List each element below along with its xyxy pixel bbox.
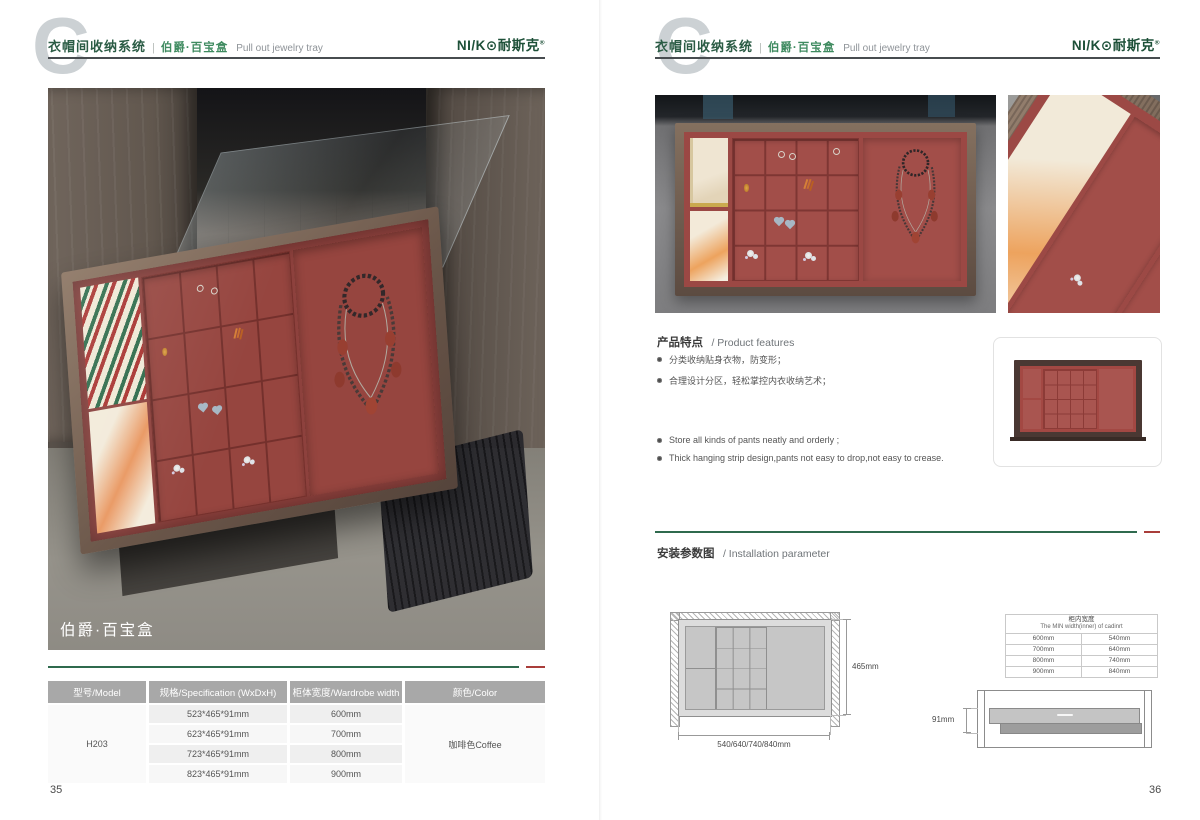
page-number-right: 36 (1149, 784, 1161, 796)
features-heading-cn: 产品特点 (657, 337, 703, 349)
header-divider: | (152, 42, 155, 54)
spec-cell: 623*465*91mm (149, 725, 287, 743)
height-label: 91mm (932, 715, 954, 724)
feature-text: 分类收纳贴身衣物，防变形； (669, 353, 786, 366)
cabinet-width-table: 柜内宽度 The MIN width(inner) of cadinrt 600… (1005, 614, 1158, 678)
header-product-name: 伯爵·百宝盒 (768, 39, 835, 55)
blue-glint (703, 95, 734, 119)
product-thumbnail (1014, 360, 1142, 438)
features-list-en: Store all kinds of pants neatly and orde… (657, 435, 944, 471)
jewelry-tray-angled (1008, 95, 1160, 313)
tray-compartments (1008, 95, 1160, 313)
tassel-icon (806, 179, 811, 189)
green-separator-line (48, 666, 519, 668)
feature-item: 分类收纳贴身衣物，防变形； (657, 353, 831, 366)
product-thumbnail-box (993, 337, 1162, 467)
width-dimension-line (678, 735, 830, 736)
scarf-column-outline (686, 627, 716, 709)
cell: 640mm (1082, 644, 1158, 655)
table-row: 600mm540mm (1006, 633, 1158, 644)
page-gutter (599, 0, 602, 820)
cell: 600mm (1006, 633, 1082, 644)
tray-compartments (690, 138, 960, 280)
table-row: 900mm840mm (1006, 667, 1158, 678)
height-dimension-line (966, 708, 967, 733)
dimension-extension (966, 733, 978, 734)
small-compartment-grid (1043, 369, 1098, 429)
spec-cell: 723*465*91mm (149, 745, 287, 763)
color-cell: 咖啡色Coffee (405, 705, 545, 783)
registered-mark: ® (1155, 40, 1160, 47)
installation-heading-en: / Installation parameter (723, 548, 830, 560)
bullet-icon (657, 438, 662, 443)
cell: 840mm (1082, 667, 1158, 678)
brand-mark (1057, 714, 1073, 716)
width-cell: 900mm (290, 765, 402, 783)
page-number-left: 35 (50, 784, 62, 796)
necklace-compartment (863, 138, 961, 280)
header-tagline-en: Pull out jewelry tray (843, 43, 930, 54)
jewelry-tray (675, 123, 975, 295)
heart-pendant-icon (774, 218, 782, 226)
green-separator-line (655, 531, 1137, 533)
table-row: 800mm740mm (1006, 655, 1158, 666)
header-divider: | (759, 42, 762, 54)
installation-heading: 安装参数图 / Installation parameter (657, 544, 830, 562)
depth-dimension-line (846, 619, 847, 715)
spec-table: 型号/Model 规格/Specification (WxDxH) 柜体宽度/W… (48, 681, 545, 783)
width-table-title: 柜内宽度 The MIN width(inner) of cadinrt (1006, 615, 1158, 634)
tray-velvet (1020, 366, 1136, 432)
earring-icon (833, 148, 840, 155)
width-table-title-en: The MIN width(inner) of cadinrt (1006, 624, 1157, 632)
depth-label: 465mm (852, 662, 879, 671)
tray-compartments (1023, 369, 1133, 429)
amber-pendant-icon (744, 184, 749, 192)
width-cell: 600mm (290, 705, 402, 723)
cell: 700mm (1006, 644, 1082, 655)
grid-outline (716, 627, 767, 709)
brand-logo: NI/K⊙耐斯克® (1072, 34, 1160, 54)
photo-caption: 伯爵·百宝盒 (60, 618, 155, 640)
cell (1023, 369, 1041, 398)
model-cell: H203 (48, 705, 146, 783)
spec-cell: 823*465*91mm (149, 765, 287, 783)
cell: 900mm (1006, 667, 1082, 678)
spec-table-header-spec: 规格/Specification (WxDxH) (149, 681, 287, 703)
topview-diagram: 465mm 540/640/740/840mm (670, 607, 900, 759)
scarf-cream (690, 138, 728, 207)
flower-jewelry-icon (1072, 273, 1082, 283)
open-compartment (1099, 369, 1133, 429)
dimension-extension (830, 716, 831, 735)
spec-table-header-color: 颜色/Color (405, 681, 545, 703)
installation-heading-cn: 安装参数图 (657, 548, 715, 560)
width-table-title-cn: 柜内宽度 (1006, 616, 1157, 624)
width-label: 540/640/740/840mm (678, 740, 830, 749)
cell: 800mm (1006, 655, 1082, 666)
open-cell-outline (767, 627, 824, 709)
header-system-title: 衣帽间收纳系统 (655, 36, 753, 55)
tray-side-profile (989, 708, 1140, 724)
tray-topview-photo (655, 95, 996, 313)
features-heading: 产品特点 / Product features (657, 333, 794, 351)
dimension-extension (831, 715, 846, 716)
flower-jewelry-icon (805, 252, 812, 259)
brand-o-icon: ⊙ (486, 38, 498, 53)
scarf-column (1023, 369, 1041, 429)
spec-table-header-width: 柜体宽度/Wardrobe width (290, 681, 402, 703)
cabinet-side-wall (984, 691, 985, 747)
blue-glint (928, 95, 955, 117)
header-system-title: 衣帽间收纳系统 (48, 36, 146, 55)
scarf-column (690, 138, 728, 280)
bullet-icon (657, 456, 662, 461)
tray-compartments-outline (685, 626, 825, 710)
cell: 540mm (1082, 633, 1158, 644)
cell (1023, 400, 1041, 429)
brand-logo-cn: 耐斯克 (1113, 38, 1155, 53)
registered-mark: ® (540, 40, 545, 47)
sideview-diagram: 91mm (977, 690, 1152, 748)
brand-o-icon: ⊙ (1101, 38, 1113, 53)
necklace-graphic (863, 138, 961, 280)
features-list-cn: 分类收纳贴身衣物，防变形； 合理设计分区，轻松掌控内衣收纳艺术； (657, 353, 831, 395)
flower-jewelry-icon (747, 250, 754, 257)
heart-pendant-icon (785, 221, 793, 229)
tray-under-profile (1000, 723, 1142, 734)
tray-corner-photo (1008, 95, 1160, 313)
tray-base (1010, 437, 1146, 441)
spec-table-header-model: 型号/Model (48, 681, 146, 703)
tray-outline (678, 619, 832, 717)
feature-item: Thick hanging strip design,pants not eas… (657, 453, 944, 463)
scarf-orange (690, 211, 728, 280)
header-rule (48, 57, 545, 59)
earring-icon (778, 151, 785, 158)
header-tagline-en: Pull out jewelry tray (236, 43, 323, 54)
brand-logo-left: NI/K (1072, 38, 1101, 53)
small-compartment-grid (732, 138, 858, 280)
brand-logo: NI/K⊙耐斯克® (457, 34, 545, 54)
catalog-page-right: C 衣帽间收纳系统 | 伯爵·百宝盒 Pull out jewelry tray… (655, 0, 1160, 820)
feature-item: Store all kinds of pants neatly and orde… (657, 435, 944, 445)
width-cell: 700mm (290, 725, 402, 743)
header-product-name: 伯爵·百宝盒 (161, 39, 228, 55)
tray-velvet (684, 132, 966, 286)
catalog-page-left: C 衣帽间收纳系统 | 伯爵·百宝盒 Pull out jewelry tray… (48, 0, 545, 820)
brand-logo-left: NI/K (457, 38, 486, 53)
bullet-icon (657, 378, 662, 383)
red-separator-accent (526, 666, 545, 668)
feature-text: Thick hanging strip design,pants not eas… (669, 453, 944, 463)
brand-logo-cn: 耐斯克 (498, 38, 540, 53)
width-cell: 800mm (290, 745, 402, 763)
table-row: 700mm640mm (1006, 644, 1158, 655)
features-heading-en: / Product features (711, 337, 794, 349)
cabinet-side-wall (1144, 691, 1145, 747)
tray-velvet (1008, 95, 1160, 313)
feature-text: Store all kinds of pants neatly and orde… (669, 435, 839, 445)
cell: 740mm (1082, 655, 1158, 666)
earring-icon (789, 153, 796, 160)
feature-text: 合理设计分区，轻松掌控内衣收纳艺术； (669, 374, 831, 387)
feature-item: 合理设计分区，轻松掌控内衣收纳艺术； (657, 374, 831, 387)
red-separator-accent (1144, 531, 1160, 533)
header-rule (655, 57, 1160, 59)
bullet-icon (657, 357, 662, 362)
spec-cell: 523*465*91mm (149, 705, 287, 723)
main-product-photo: 伯爵·百宝盒 (48, 88, 545, 650)
